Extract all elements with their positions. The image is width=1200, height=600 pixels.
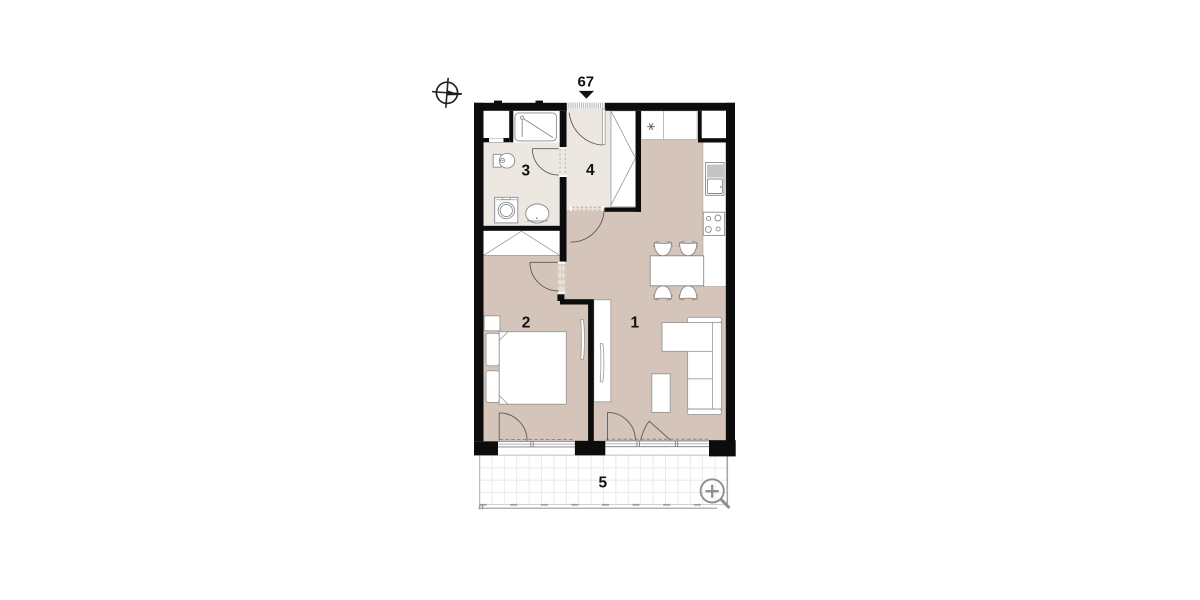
svg-text:5: 5 bbox=[598, 475, 607, 492]
svg-text:2: 2 bbox=[522, 315, 531, 332]
svg-text:67: 67 bbox=[577, 73, 594, 90]
svg-text:3: 3 bbox=[521, 163, 530, 180]
svg-text:4: 4 bbox=[586, 162, 595, 179]
svg-text:1: 1 bbox=[630, 315, 639, 332]
